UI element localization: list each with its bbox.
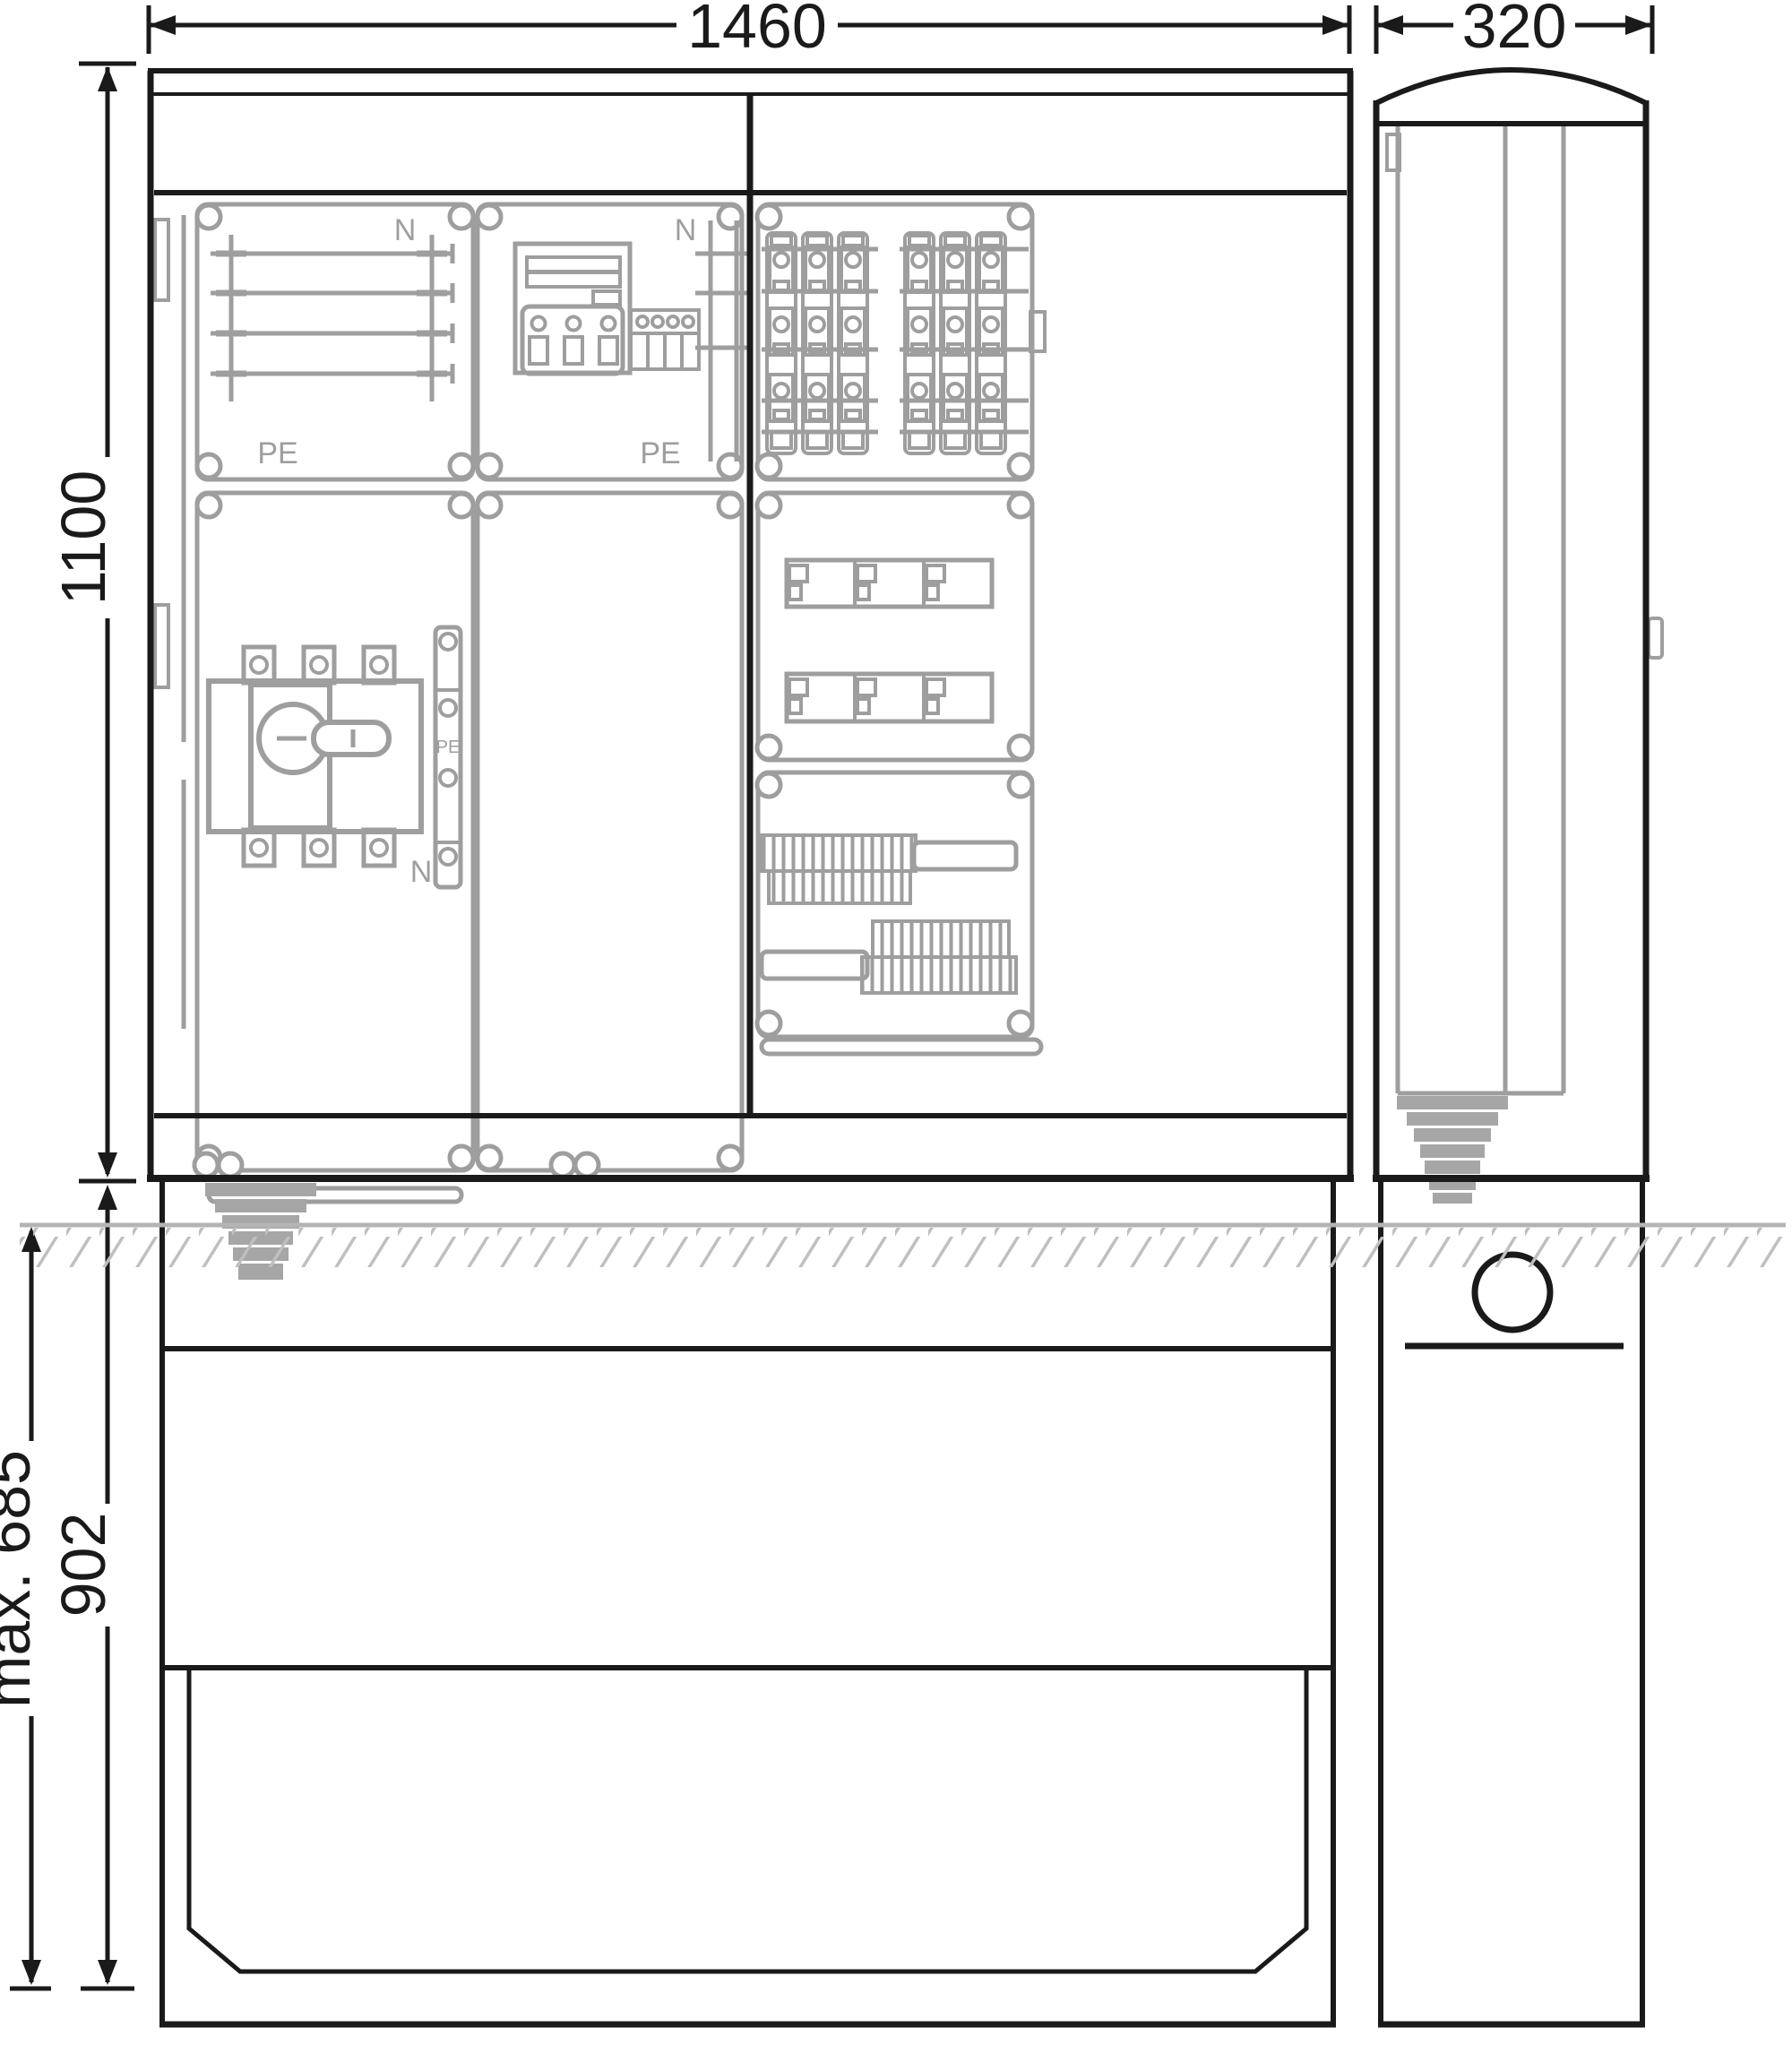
fuse-module-panel	[757, 204, 1045, 479]
meter-n-label: N	[675, 213, 697, 247]
busbar-pe-label: PE	[257, 436, 297, 470]
dim-front-width: 1460	[149, 0, 1349, 61]
mcb-row-2	[787, 674, 992, 721]
dim-body-height: 1100	[48, 64, 136, 1181]
meter-pe-label: PE	[640, 436, 680, 470]
meter-module-panel: N PE	[478, 204, 751, 479]
front-pedestal	[159, 1178, 1336, 2024]
dim-pedestal-height: 902	[48, 1185, 134, 1989]
ground-hatch	[20, 1228, 1786, 1267]
dim-side-width-label: 320	[1462, 0, 1567, 61]
dim-foundation-depth-label: max. 685	[0, 1450, 43, 1708]
side-pedestal	[1378, 1178, 1645, 2024]
mcb-row-1	[787, 560, 992, 607]
busbar-n-label: N	[394, 213, 417, 247]
side-view-cabinet	[1373, 70, 1650, 1178]
dim-side-width: 320	[1376, 0, 1652, 61]
switch-disconnector	[209, 647, 421, 866]
cabinet-structure-layer: 1460 320 1100 902	[0, 0, 1652, 2024]
meter-device	[515, 244, 630, 374]
switch-n-label: N	[410, 855, 433, 889]
side-cable-gland	[1397, 1096, 1508, 1204]
terminal-module-panel	[757, 772, 1032, 1037]
ground	[20, 1225, 1786, 1267]
terminal-comb-upper	[762, 835, 1016, 903]
dimensional-drawing-page: N PE	[0, 0, 1792, 2045]
right-door-bottom-strip	[762, 1040, 1041, 1054]
meter-terminal-block	[631, 310, 699, 369]
switch-module-panel: PE N	[197, 493, 473, 1170]
busbar-module-panel: N PE	[197, 204, 473, 479]
side-view-inner-door	[1387, 125, 1662, 1093]
busbars	[211, 235, 452, 401]
blank-module-panel	[478, 493, 742, 1170]
fuse-strips	[767, 233, 1005, 453]
internal-components-layer: N PE	[155, 125, 1662, 1280]
dim-pedestal-height-label: 902	[48, 1513, 118, 1618]
dim-foundation-depth: max. 685	[0, 1227, 51, 1989]
pedestal-foot-recess	[189, 1670, 1306, 1972]
mcb-module-panel	[757, 493, 1032, 760]
pe-rail: PE	[435, 627, 461, 887]
side-roof-dome	[1376, 70, 1646, 103]
pe-rail-label: PE	[436, 738, 461, 757]
front-view-cabinet	[147, 71, 1354, 1178]
terminal-comb-lower	[762, 921, 1016, 993]
left-door-hinge-strip	[155, 215, 184, 1029]
dim-front-width-label: 1460	[687, 0, 827, 61]
side-door-handle	[1649, 618, 1662, 658]
dim-body-height-label: 1100	[48, 470, 118, 606]
cabinet-dimensional-drawing: N PE	[0, 0, 1792, 2045]
